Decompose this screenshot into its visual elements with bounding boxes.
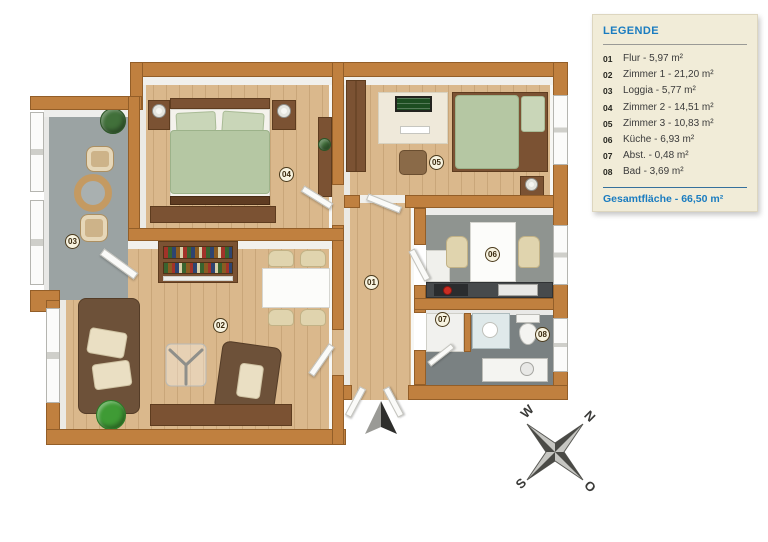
- window-bad: [553, 318, 568, 372]
- legend-divider-blue: [603, 187, 747, 188]
- legend-item-text: Zimmer 2 - 14,51 m²: [623, 100, 714, 116]
- kitchen-chair: [446, 236, 468, 268]
- dining-chair: [268, 250, 294, 267]
- legend-box: LEGENDE 01 Flur - 5,97 m² 02 Zimmer 1 - …: [592, 14, 758, 212]
- legend-item-number: 08: [603, 164, 623, 180]
- single-bed-pillow: [521, 96, 545, 132]
- sideboard: [150, 404, 292, 426]
- coffee-table: [162, 340, 210, 390]
- table-lamp: [277, 104, 291, 118]
- compass-letter-west: W: [517, 404, 537, 421]
- legend-item-text: Zimmer 1 - 21,20 m²: [623, 67, 714, 83]
- wall-hall-right: [414, 208, 426, 245]
- wall-zimmer3-bottom: [405, 195, 554, 208]
- wall-shelf: [318, 117, 332, 197]
- room-badge-bad: 08: [535, 327, 550, 342]
- legend-item-number: 01: [603, 51, 623, 67]
- shelf-plant: [318, 138, 331, 151]
- wall-center-vertical: [332, 375, 344, 445]
- compass-letter-north: N: [581, 408, 598, 425]
- table-lamp: [152, 104, 166, 118]
- wall-kitchen-bath: [414, 298, 554, 310]
- legend-item: 08 Bad - 3,69 m²: [603, 164, 747, 180]
- wall-loggia-top: [30, 96, 142, 110]
- wall-exterior-bottom-right-b: [408, 385, 568, 400]
- legend-items: 01 Flur - 5,97 m² 02 Zimmer 1 - 21,20 m²…: [603, 51, 747, 181]
- loggia-round-table: [74, 174, 112, 212]
- legend-item-text: Küche - 6,93 m²: [623, 132, 694, 148]
- loggia-chair: [80, 214, 108, 242]
- wall-zimmer3-bottom: [344, 195, 360, 208]
- window-loggia: [30, 112, 44, 192]
- cooktop-burner: [443, 286, 452, 295]
- legend-divider: [603, 44, 747, 45]
- wall-center-vertical: [332, 62, 344, 185]
- legend-title: LEGENDE: [603, 25, 747, 37]
- room-badge-abstellraum: 07: [435, 312, 450, 327]
- wall-zimmer2-bottom: [128, 228, 344, 241]
- legend-item-number: 04: [603, 100, 623, 116]
- keyboard: [400, 126, 430, 134]
- legend-total: Gesamtfläche - 66,50 m²: [603, 193, 747, 205]
- dresser: [150, 206, 276, 223]
- legend-item-text: Bad - 3,69 m²: [623, 164, 684, 180]
- book-row: [163, 246, 233, 259]
- legend-item: 05 Zimmer 3 - 10,83 m²: [603, 116, 747, 132]
- double-bed-footboard: [170, 196, 270, 205]
- floor-plant: [96, 400, 126, 430]
- wash-basin: [520, 362, 534, 376]
- doorway-floor-zimmer2: [332, 185, 344, 225]
- doorway-floor-zimmer1: [332, 330, 344, 375]
- room-badge-flur: 01: [364, 275, 379, 290]
- window-kueche: [553, 225, 568, 285]
- room-flur-floor: [344, 195, 414, 400]
- legend-item: 02 Zimmer 1 - 21,20 m²: [603, 67, 747, 83]
- legend-item-text: Flur - 5,97 m²: [623, 51, 683, 67]
- dining-table: [262, 268, 330, 308]
- desk-stool: [399, 150, 427, 175]
- window-zimmer3: [553, 95, 568, 165]
- room-badge-zimmer1: 02: [213, 318, 228, 333]
- loggia-plant: [100, 108, 126, 134]
- wall-abstellraum-right: [464, 313, 471, 352]
- table-lamp: [525, 178, 538, 191]
- bookshelf-cabinet: [163, 276, 233, 281]
- compass-letter-south: S: [513, 475, 530, 492]
- wall-exterior-top: [130, 62, 568, 77]
- legend-item: 04 Zimmer 2 - 14,51 m²: [603, 100, 747, 116]
- single-bed-duvet: [455, 95, 519, 169]
- wardrobe: [346, 80, 366, 172]
- shower-drain: [482, 322, 498, 338]
- computer-monitor: [395, 96, 432, 112]
- bathroom-vanity: [482, 358, 548, 382]
- room-badge-loggia: 03: [65, 234, 80, 249]
- legend-item-number: 05: [603, 116, 623, 132]
- wall-hall-right: [414, 350, 426, 385]
- book-row: [163, 262, 233, 274]
- room-badge-kueche: 06: [485, 247, 500, 262]
- dining-chair: [300, 250, 326, 267]
- legend-item-text: Loggia - 5,77 m²: [623, 83, 696, 99]
- dining-chair: [268, 309, 294, 326]
- window-loggia: [30, 200, 44, 285]
- armchair-pillow: [236, 362, 264, 399]
- compass-rose: W N S O: [505, 404, 605, 496]
- room-badge-zimmer2: 04: [279, 167, 294, 182]
- wall-loggia-right: [128, 96, 140, 241]
- bed-duvet: [170, 130, 270, 194]
- double-bed-headboard: [170, 98, 270, 109]
- legend-item-text: Abst. - 0,48 m²: [623, 148, 689, 164]
- entrance-arrow-icon: [360, 400, 402, 436]
- kitchen-chair: [518, 236, 540, 268]
- sofa-pillow: [91, 359, 132, 390]
- legend-item: 01 Flur - 5,97 m²: [603, 51, 747, 67]
- loggia-chair: [86, 146, 114, 172]
- kitchen-sink: [498, 284, 538, 296]
- window-living: [46, 308, 60, 403]
- legend-item-text: Zimmer 3 - 10,83 m²: [623, 116, 714, 132]
- legend-item-number: 02: [603, 67, 623, 83]
- legend-item-number: 07: [603, 148, 623, 164]
- compass-letter-east: O: [581, 478, 599, 496]
- legend-item-number: 06: [603, 132, 623, 148]
- legend-item: 03 Loggia - 5,77 m²: [603, 83, 747, 99]
- toilet-tank: [516, 314, 540, 323]
- dining-chair: [300, 309, 326, 326]
- legend-item: 06 Küche - 6,93 m²: [603, 132, 747, 148]
- wall-exterior-bottom: [46, 429, 346, 445]
- legend-item: 07 Abst. - 0,48 m²: [603, 148, 747, 164]
- legend-item-number: 03: [603, 83, 623, 99]
- room-badge-zimmer3: 05: [429, 155, 444, 170]
